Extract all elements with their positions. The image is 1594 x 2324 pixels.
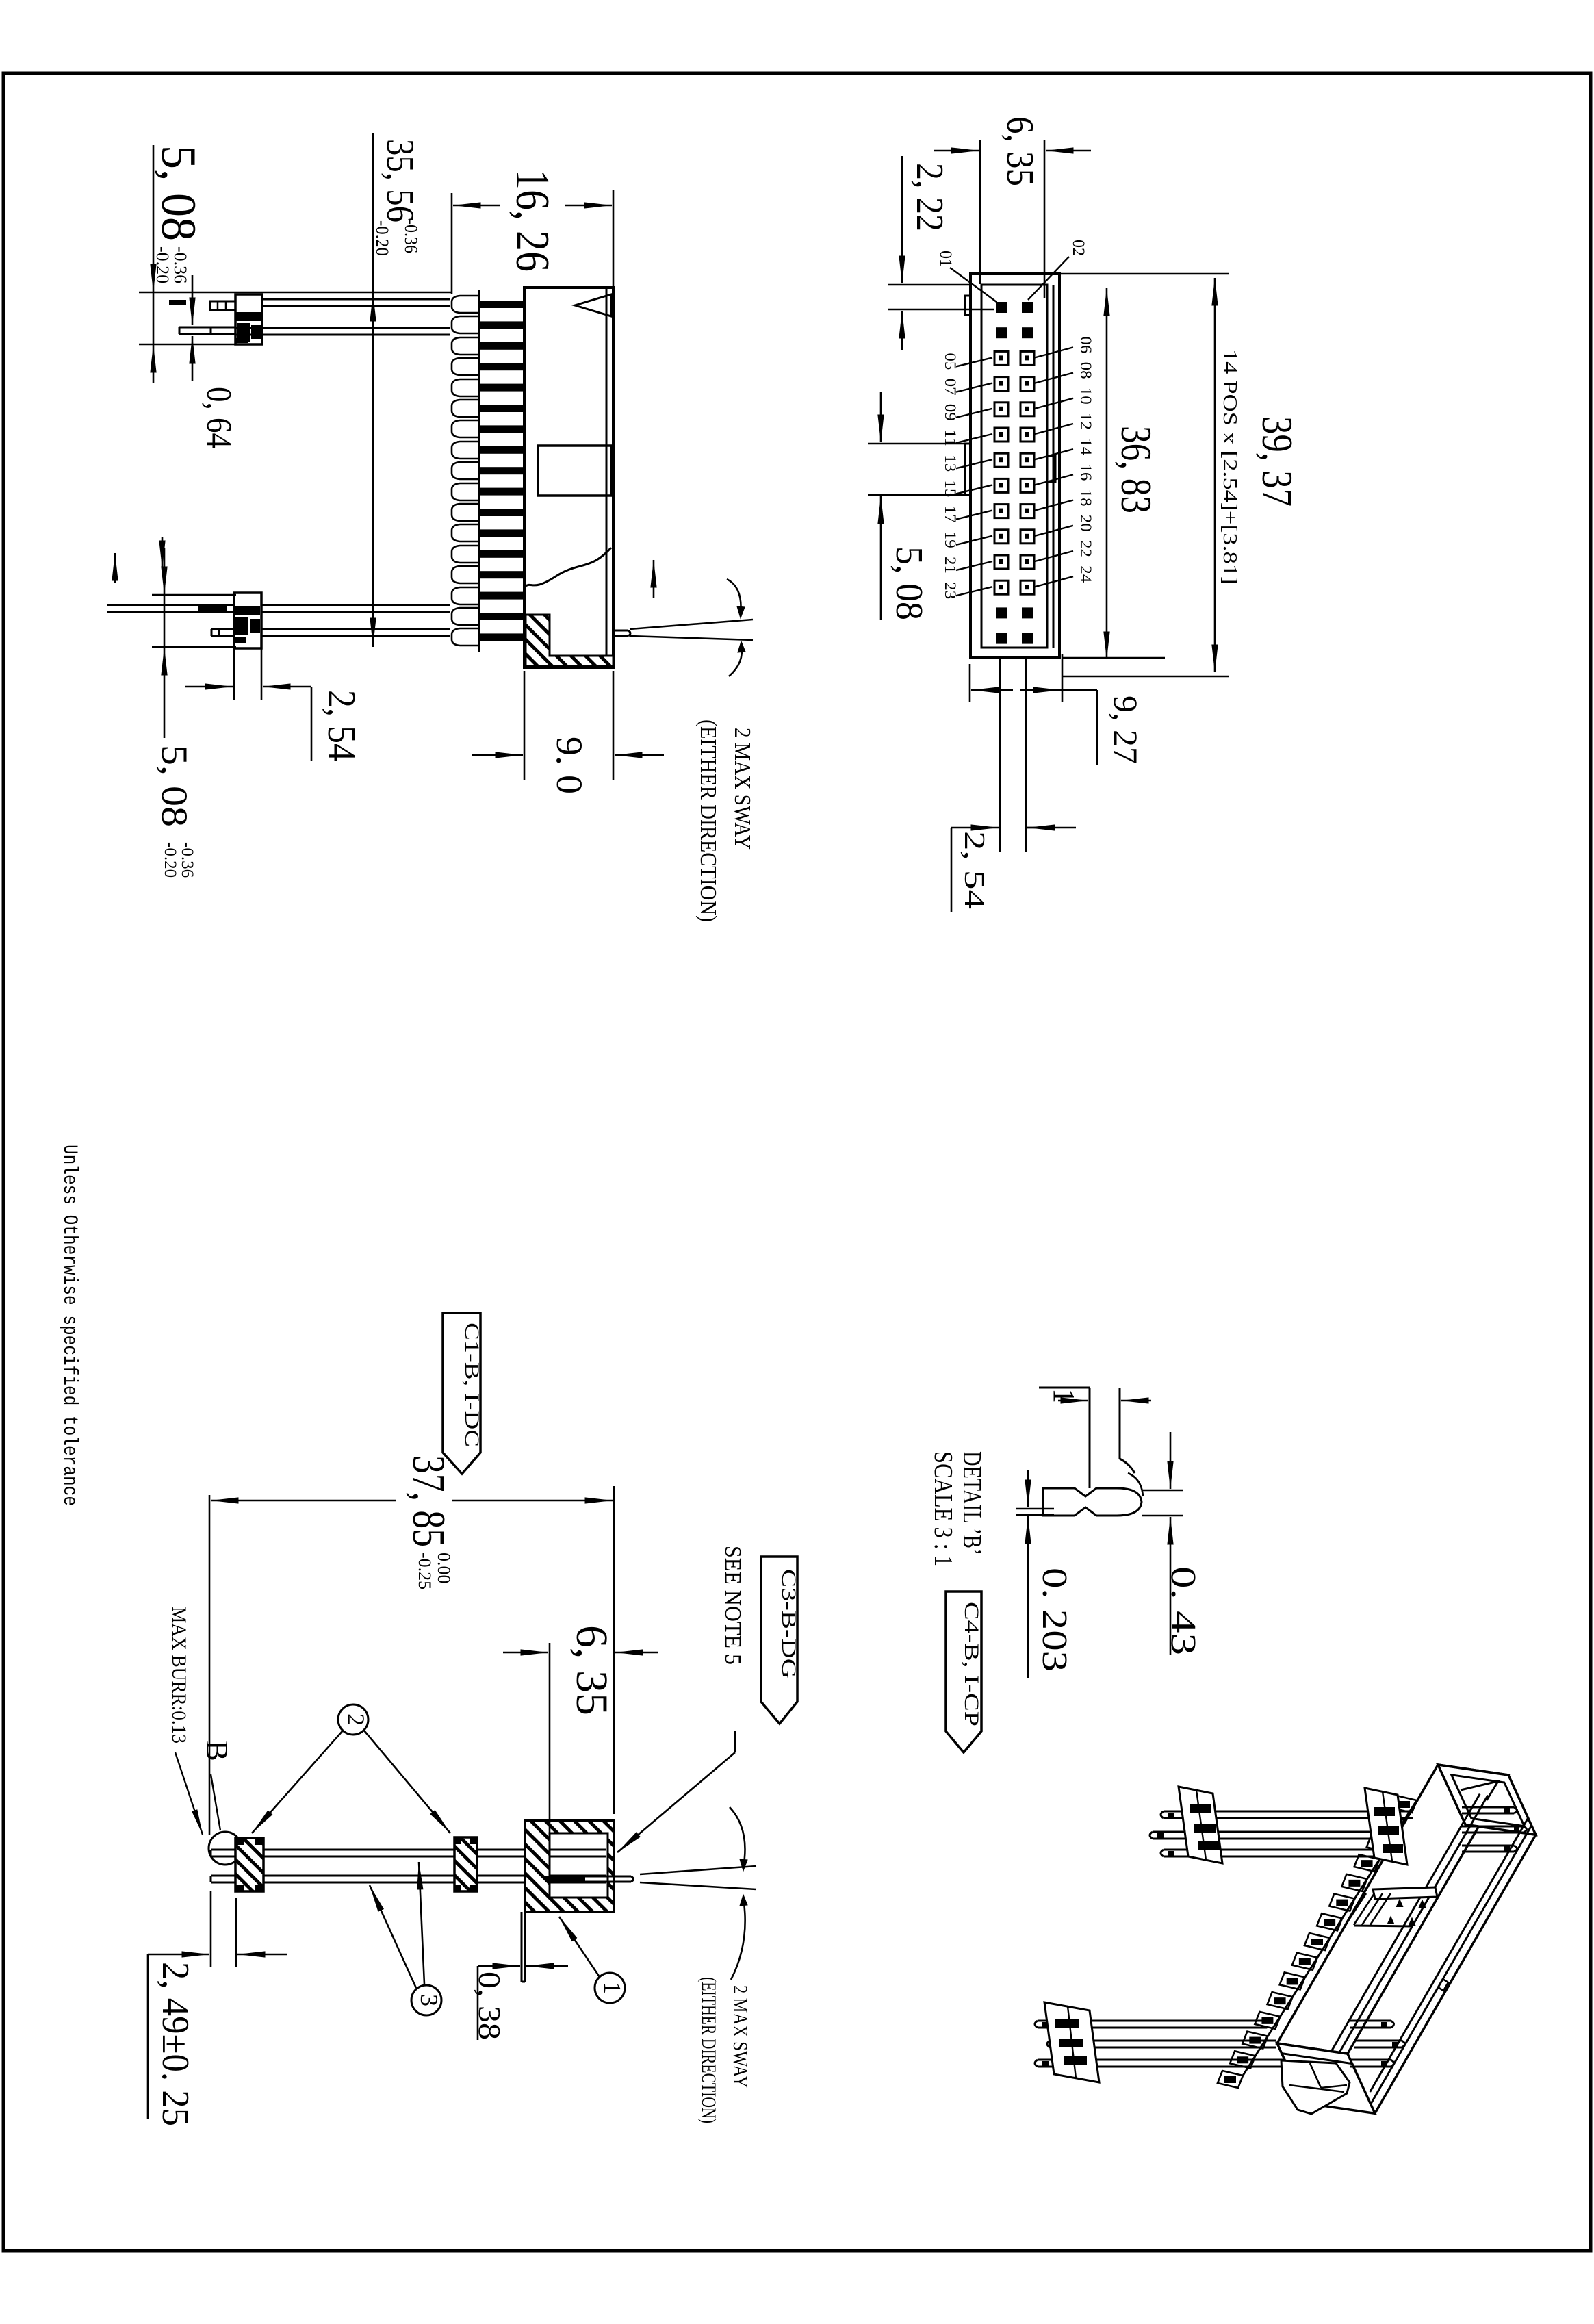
svg-text:-0.25: -0.25	[415, 1553, 435, 1589]
svg-text:-0.20: -0.20	[161, 842, 179, 878]
svg-text:20: 20	[1077, 515, 1094, 532]
svg-text:14: 14	[1077, 438, 1094, 456]
svg-text:0. 203: 0. 203	[1035, 1568, 1074, 1672]
svg-text:10: 10	[1077, 387, 1094, 405]
svg-text:08: 08	[1077, 362, 1094, 379]
svg-text:14 POS x [2.54]+[3.81]: 14 POS x [2.54]+[3.81]	[1219, 349, 1240, 585]
svg-text:22: 22	[1077, 540, 1094, 557]
svg-text:01: 01	[936, 251, 955, 267]
svg-text:5, 08: 5, 08	[151, 145, 206, 241]
svg-text:36, 83: 36, 83	[1112, 426, 1161, 513]
svg-text:2, 54: 2, 54	[958, 831, 990, 909]
svg-text:17: 17	[942, 506, 959, 523]
svg-text:21: 21	[942, 557, 959, 574]
svg-text:2, 54: 2, 54	[320, 690, 364, 761]
svg-text:C3-B-DG: C3-B-DG	[777, 1569, 800, 1678]
svg-text:6, 35: 6, 35	[567, 1625, 617, 1715]
svg-text:-0.36: -0.36	[170, 246, 190, 283]
svg-text:2 MAX SWAY: 2 MAX SWAY	[729, 1985, 751, 2088]
svg-text:0, 38: 0, 38	[472, 1971, 507, 2040]
svg-text:9. 0: 9. 0	[549, 737, 590, 794]
svg-text:3: 3	[415, 1994, 443, 2006]
svg-text:02: 02	[1069, 240, 1088, 256]
svg-text:13: 13	[942, 455, 959, 472]
svg-text:2: 2	[342, 1713, 370, 1726]
svg-text:16, 26: 16, 26	[506, 169, 558, 272]
svg-text:SCALE 3 : 1: SCALE 3 : 1	[929, 1451, 957, 1566]
svg-text:C4-B, I-CP: C4-B, I-CP	[960, 1602, 983, 1726]
svg-text:5, 08: 5, 08	[888, 546, 930, 620]
svg-text:5, 08: 5, 08	[154, 745, 195, 827]
svg-text:2, 22: 2, 22	[908, 163, 951, 231]
svg-text:18: 18	[1077, 489, 1094, 507]
svg-text:C1-B, I-DC: C1-B, I-DC	[461, 1323, 483, 1447]
svg-text:DETAIL ’B’: DETAIL ’B’	[957, 1451, 986, 1555]
svg-text:-0.20: -0.20	[153, 246, 172, 283]
svg-text:0. 43: 0. 43	[1164, 1566, 1203, 1655]
svg-text:06: 06	[1077, 336, 1094, 353]
svg-text:-0.20: -0.20	[372, 220, 392, 256]
svg-text:B: B	[200, 1740, 235, 1761]
svg-text:39, 37: 39, 37	[1253, 416, 1302, 507]
svg-text:9, 27: 9, 27	[1107, 695, 1145, 764]
svg-text:2, 49±0. 25: 2, 49±0. 25	[154, 1962, 196, 2126]
svg-text:-0.36: -0.36	[178, 842, 196, 878]
svg-text:6, 35: 6, 35	[999, 116, 1041, 186]
svg-text:0, 64: 0, 64	[199, 387, 238, 448]
svg-text:SEE NOTE 5: SEE NOTE 5	[720, 1546, 745, 1665]
svg-text:23: 23	[942, 582, 959, 599]
svg-text:05: 05	[942, 353, 959, 370]
svg-text:(EITHER DIRECTION): (EITHER DIRECTION)	[695, 719, 721, 922]
svg-text:19: 19	[942, 531, 959, 548]
svg-text:35, 56: 35, 56	[378, 139, 422, 222]
svg-text:37, 85: 37, 85	[403, 1455, 455, 1547]
svg-text:07: 07	[942, 379, 959, 396]
svg-text:2 MAX SWAY: 2 MAX SWAY	[730, 728, 755, 850]
svg-text:(EITHER DIRECTION): (EITHER DIRECTION)	[697, 1977, 720, 2123]
svg-text:16: 16	[1077, 463, 1094, 481]
svg-text:MAX BURR:0.13: MAX BURR:0.13	[168, 1607, 190, 1744]
svg-text:24: 24	[1077, 565, 1094, 583]
svg-text:-0.36: -0.36	[401, 219, 421, 253]
svg-text:1: 1	[1047, 1388, 1081, 1403]
svg-text:0.00: 0.00	[434, 1553, 454, 1584]
svg-text:12: 12	[1077, 413, 1094, 430]
svg-text:Unless Otherwise specified tol: Unless Otherwise specified tolerance	[57, 1145, 81, 1506]
svg-text:1: 1	[599, 1982, 626, 1994]
svg-text:09: 09	[942, 404, 959, 421]
